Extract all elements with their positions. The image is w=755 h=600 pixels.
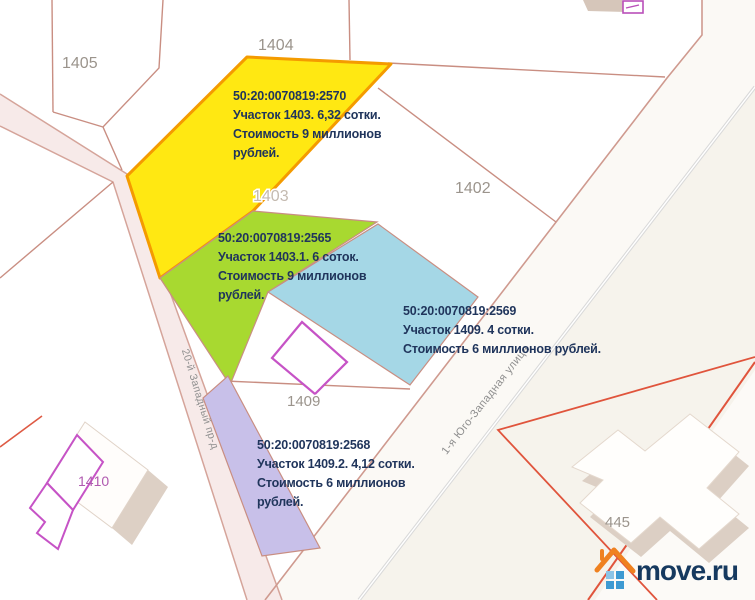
logo-text: move.ru: [636, 555, 738, 587]
parcel-label-1404: 1404: [258, 37, 294, 54]
window-pane: [616, 571, 624, 579]
plot-price: Стоимость 6 миллионов: [257, 474, 415, 493]
parcel-label-1403: 1403: [253, 188, 289, 205]
plot-price-cont: рублей.: [233, 144, 381, 163]
plot-price: Стоимость 9 миллионов: [233, 125, 381, 144]
parcel-label-1402: 1402: [455, 180, 491, 197]
boundary-line: [349, 0, 350, 60]
cadastral-number: 50:20:0070819:2569: [403, 302, 601, 321]
plot-size: Участок 1409. 4 сотки.: [403, 321, 601, 340]
cadastral-number: 50:20:0070819:2565: [218, 229, 366, 248]
window-pane: [616, 581, 624, 589]
boundary-line: [52, 0, 53, 112]
parcel-label-1410: 1410: [78, 473, 109, 489]
plot-price-cont: рублей.: [218, 286, 366, 305]
building-tan-top: [583, 0, 626, 12]
plot-price: Стоимость 6 миллионов рублей.: [403, 340, 601, 359]
parcel-label-1409: 1409: [287, 393, 320, 410]
plot-annotation-1409: 50:20:0070819:2569 Участок 1409. 4 сотки…: [403, 302, 601, 359]
plot-annotation-1403: 50:20:0070819:2570 Участок 1403. 6,32 со…: [233, 87, 381, 163]
house-icon: [594, 545, 636, 591]
window-pane: [606, 581, 614, 589]
plot-price-cont: рублей.: [257, 493, 415, 512]
cadastral-number: 50:20:0070819:2570: [233, 87, 381, 106]
cadastral-map-image: 1405 1404 1403 1402 1409 1410 445 20-й З…: [0, 0, 755, 600]
plot-price: Стоимость 9 миллионов: [218, 267, 366, 286]
window-pane: [606, 571, 614, 579]
parcel-label-445: 445: [605, 514, 630, 531]
plot-size: Участок 1409.2. 4,12 сотки.: [257, 455, 415, 474]
plot-annotation-1403-1: 50:20:0070819:2565 Участок 1403.1. 6 сот…: [218, 229, 366, 305]
plot-annotation-1409-2: 50:20:0070819:2568 Участок 1409.2. 4,12 …: [257, 436, 415, 512]
moveru-logo[interactable]: move.ru: [592, 543, 755, 598]
parcel-label-1405: 1405: [62, 55, 98, 72]
cadastral-number: 50:20:0070819:2568: [257, 436, 415, 455]
plot-size: Участок 1403.1. 6 соток.: [218, 248, 366, 267]
plot-size: Участок 1403. 6,32 сотки.: [233, 106, 381, 125]
